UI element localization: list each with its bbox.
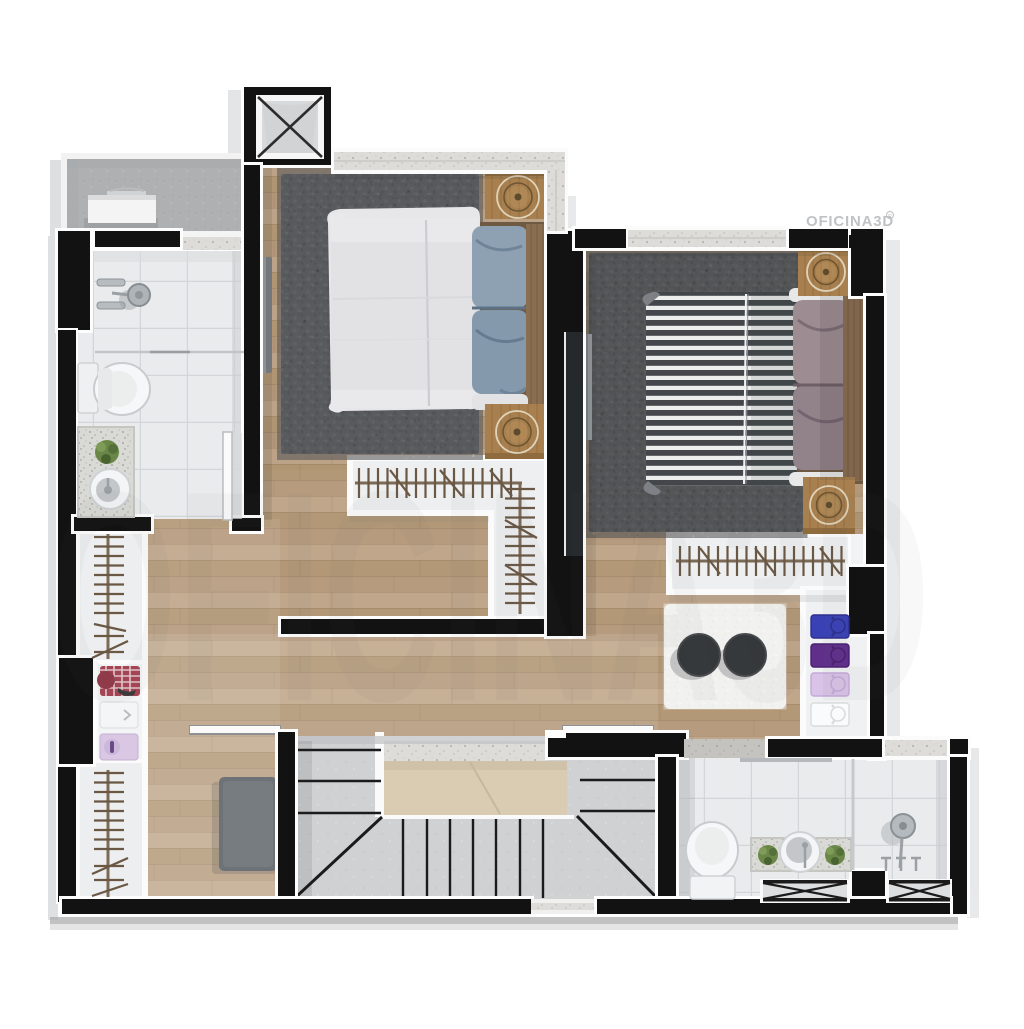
svg-text:R: R	[888, 214, 892, 220]
svg-text:OFICINA3D: OFICINA3D	[806, 213, 894, 230]
svg-text:OFICINA3D: OFICINA3D	[50, 428, 930, 764]
